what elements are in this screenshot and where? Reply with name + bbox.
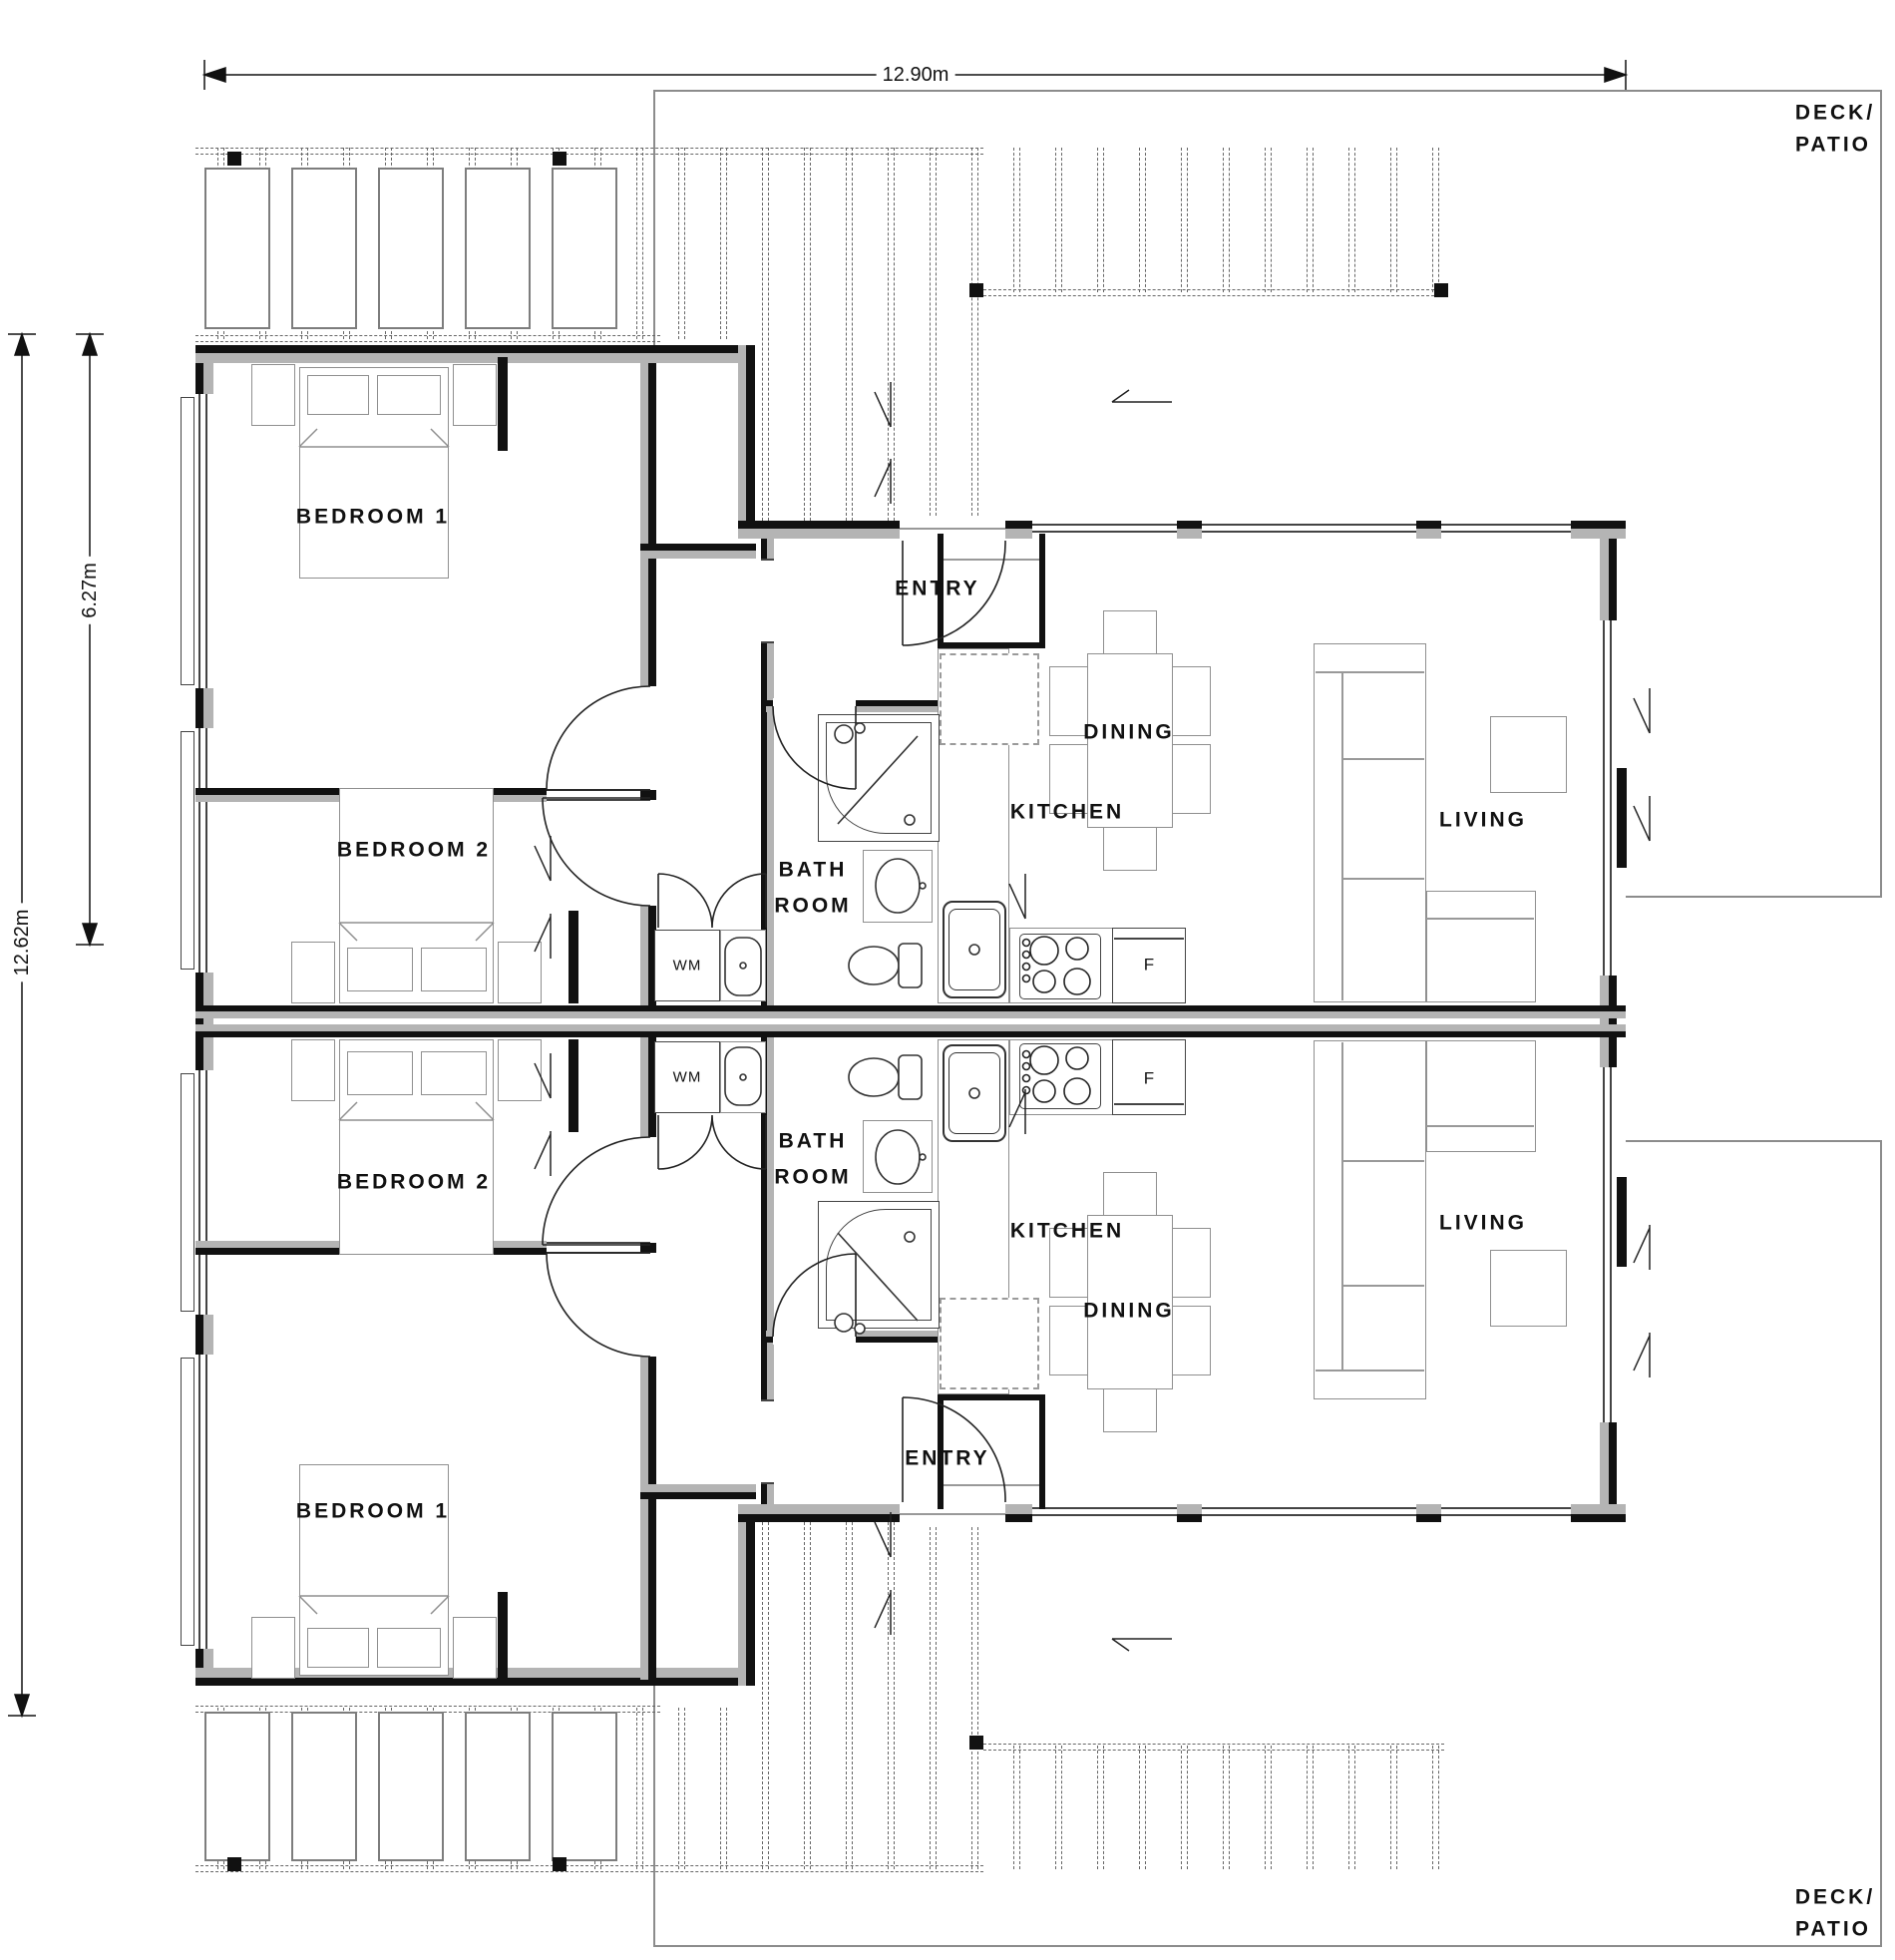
entry-threshold [900,1513,1005,1515]
window-glazing [1202,1507,1416,1509]
window-frame [181,397,194,685]
pergola-rafter [1139,1746,1146,1869]
wall-hall [648,1357,656,1680]
room-label-entry: ENTRY [895,579,979,599]
pergola-louvre [465,1712,531,1861]
kitchen-sink-bowl [948,1052,1000,1134]
window-bottom [1202,1500,1416,1526]
pergola-rafter [1013,1746,1020,1869]
room-label-kitchen: KITCHEN [1010,802,1124,823]
room-label-dining: DINING [1083,722,1175,743]
pillow [377,1628,441,1668]
pergola-post [227,1857,241,1871]
pergola-rafter [762,1522,769,1869]
dining-chair [1171,1228,1211,1298]
window-top [1441,517,1571,543]
dimension-width-label: 12.90m [877,65,955,85]
closet-wall [938,1394,1045,1400]
wall-stub-core [640,551,756,559]
pergola-rafter [1181,1746,1188,1869]
window-glazing [1032,1507,1177,1509]
room-label-dining: DINING [1083,1301,1175,1322]
pergola-rafter [1307,148,1314,292]
sofa-line [1316,671,1424,673]
window-glazing [205,728,207,973]
wall-stub [640,544,756,551]
window-frame [181,731,194,970]
pergola-rafter [678,148,685,339]
window-glazing [198,728,200,973]
wardrobe-door [498,357,508,451]
window-glazing [198,1070,200,1315]
room-label-bathroom: BATH [779,860,848,881]
pergola-rafter [888,1522,895,1869]
pergola-rafter [1348,148,1355,292]
coffee-table [1490,716,1567,793]
pergola-rafter [804,1522,811,1869]
sofa [1314,643,1426,1002]
pergola-rafter [720,148,727,339]
window-glazing [1441,524,1571,526]
pergola-rafter [1432,1746,1439,1869]
window-left [191,728,215,973]
pergola-rafter [636,1708,643,1869]
pergola-louvre [204,168,270,329]
appliance-label-wm: WM [673,1070,702,1085]
room-label-bedroom1: BEDROOM 1 [296,507,450,528]
party-wall-core [195,1024,1626,1031]
pergola-louvre [378,1712,444,1861]
vanity [863,850,933,923]
window-glazing [205,394,207,688]
pergola-rafter [1139,148,1146,292]
nightstand [453,364,497,426]
wall-step-core [738,345,746,539]
pergola-rafter [1265,1746,1272,1869]
nightstand [498,942,542,1003]
nightstand [251,1617,295,1679]
pergola-rafter [1223,148,1230,292]
wall-step-core [738,1504,746,1686]
window-glazing [198,394,200,688]
pergola-rafter [930,148,937,521]
pergola-rafter [1348,1746,1355,1869]
pergola-edge [983,1744,1444,1751]
pergola-post [1434,283,1448,297]
cased-opening [761,559,774,561]
appliance-label-fridge: F [1144,957,1154,974]
sofa-line [1343,878,1424,880]
laundry-tub [720,1041,766,1113]
room-label-kitchen: KITCHEN [1010,1221,1124,1242]
deck-patio-label-top: DECK/ [1795,103,1875,124]
sofa-line [1426,918,1534,920]
window-glazing [1032,1514,1177,1516]
wall-vestibule-core [767,1037,774,1399]
nightstand [291,1039,335,1101]
sofa-line [1343,758,1424,760]
pillow [307,375,369,415]
wall-hall-core [640,1357,648,1680]
pillow [347,1051,413,1095]
window-glazing [1202,531,1416,533]
cooktop [1019,1043,1101,1109]
cooktop [1019,934,1101,999]
pergola-post [969,1736,983,1750]
pillow [421,948,487,991]
wall-stub [640,1492,756,1499]
entry-threshold [900,528,1005,530]
pergola-louvre [291,1712,357,1861]
sofa-line [1343,1160,1424,1162]
pergola-rafter [888,148,895,521]
room-label-bedroom1: BEDROOM 1 [296,1501,450,1522]
wardrobe-door [498,1592,508,1686]
pillow [347,948,413,991]
closet-wall [1039,534,1045,648]
vanity [863,1120,933,1193]
kitchen-dishwasher [940,653,1039,745]
room-label-bedroom2: BEDROOM 2 [337,840,491,861]
room-label-bathroom: ROOM [774,896,851,917]
wall-bedrooms-bottom [195,1678,755,1686]
room-label-living: LIVING [1439,1213,1527,1234]
window-left [191,394,215,688]
window-frame [181,1073,194,1312]
pergola-post [553,152,567,166]
nightstand [498,1039,542,1101]
pergola-edge [195,1865,983,1872]
closet-shelf [944,1484,1039,1486]
pergola-louvre [204,1712,270,1861]
wall-stub-core [640,1484,756,1492]
slider-panel [1617,768,1627,868]
pergola-rafter [971,1522,978,1869]
dimension-depth-label: 12.62m [12,904,32,982]
wall-step [746,1504,755,1686]
closet-shelf [944,559,1039,561]
kitchen-dishwasher [940,1298,1039,1389]
entry-opening [900,517,1005,543]
window-glazing [205,1355,207,1649]
deck-patio-label-bottom: DECK/ [1795,1887,1875,1908]
cased-opening [547,799,650,801]
window-glazing [1202,1514,1416,1516]
pergola-rafter [1055,1746,1062,1869]
window-frame [181,1358,194,1646]
pillow [421,1051,487,1095]
bathroom-door-opening [773,698,856,714]
window-glazing [1603,1067,1605,1422]
pergola-rafter [1223,1746,1230,1869]
cased-opening [761,641,774,643]
door-jamb [640,1243,656,1253]
dining-chair [1171,666,1211,736]
sofa-line [1426,1125,1534,1127]
pergola-rafter [971,148,978,521]
cased-opening [547,789,650,791]
appliance-label-fridge: F [1144,1070,1154,1087]
window-top [1202,517,1416,543]
dining-chair [1171,1306,1211,1375]
pergola-rafter [636,148,643,339]
appliance-label-wm: WM [673,959,702,974]
kitchen-sink-bowl [948,909,1000,990]
pergola-rafter [930,1522,937,1869]
dining-chair [1171,744,1211,814]
pergola-edge [195,148,983,155]
pergola-louvre [552,1712,617,1861]
pergola-rafter [1390,1746,1397,1869]
deck-patio-label-bottom: PATIO [1795,1919,1871,1940]
pergola-rafter [1307,1746,1314,1869]
sofa-chaise [1426,1040,1536,1152]
dining-chair [1103,610,1157,656]
pergola-rafter [1097,148,1104,292]
room-label-bathroom: BATH [779,1131,848,1152]
room-label-living: LIVING [1439,810,1527,831]
window-glazing [1441,1514,1571,1516]
window-glazing [1441,1507,1571,1509]
dining-chair [1103,1386,1157,1432]
pillow [307,1628,369,1668]
nightstand [291,942,335,1003]
dining-chair [1103,1172,1157,1218]
deck-patio-label-top: PATIO [1795,135,1871,156]
wall-hall-core [640,363,648,686]
window-glazing [1202,524,1416,526]
pergola-rafter [846,148,853,521]
wall-vestibule-core [767,539,774,559]
nightstand [251,364,295,426]
pergola-rafter [1432,148,1439,292]
sofa-chaise [1426,891,1536,1002]
nightstand [453,1617,497,1679]
dining-chair [1103,825,1157,871]
pergola-post [969,283,983,297]
pergola-rafter [1013,148,1020,292]
pergola-rafter [762,148,769,521]
window-left [191,1355,215,1649]
sofa-line [1341,1042,1343,1370]
wall-vestibule-core [767,1484,774,1504]
pillow [377,375,441,415]
pergola-louvre [465,168,531,329]
floor-plan: 12.90m 12.62m 6.27m DECK/ PATIO DECK/ PA… [0,0,1895,1960]
party-wall-core [195,1011,1626,1018]
fridge-line [1114,1103,1184,1105]
wardrobe-door [568,1039,578,1132]
wall-hall-core [640,1037,648,1137]
window-glazing [1610,1067,1612,1422]
bathroom-door-opening [773,1329,856,1345]
window-glazing [205,1070,207,1315]
window-glazing [1032,524,1177,526]
pergola-rafter [678,1708,685,1869]
slider-panel [1617,1177,1627,1267]
cased-opening [547,1252,650,1254]
cased-opening [761,1482,774,1484]
cased-opening [761,1399,774,1401]
pergola-rafter [846,1522,853,1869]
window-bottom [1441,1500,1571,1526]
room-label-entry: ENTRY [905,1448,989,1469]
pergola-rafter [1097,1746,1104,1869]
party-wall [195,1031,1626,1037]
pergola-post [553,1857,567,1871]
room-label-bathroom: ROOM [774,1167,851,1188]
wall-bedrooms-top-core [195,353,755,363]
pergola-rafter [720,1708,727,1869]
fridge-line [1114,938,1184,940]
wall-step [746,345,755,539]
pergola-rafter [1265,148,1272,292]
window-glazing [1610,620,1612,976]
door-jamb [640,790,656,800]
pergola-louvre [291,168,357,329]
pergola-post [227,152,241,166]
window-left [191,1070,215,1315]
pergola-rafter [1390,148,1397,292]
pergola-edge [983,289,1444,296]
laundry-tub [720,930,766,1001]
window-glazing [1603,620,1605,976]
pergola-rafter [1181,148,1188,292]
room-label-bedroom2: BEDROOM 2 [337,1172,491,1193]
window-top [1032,517,1177,543]
pergola-louvre [552,168,617,329]
sofa-line [1343,1285,1424,1287]
window-glazing [1441,531,1571,533]
pergola-louvre [378,168,444,329]
wall-bedrooms-top [195,345,755,353]
coffee-table [1490,1250,1567,1327]
window-bottom [1032,1500,1177,1526]
sofa-line [1341,673,1343,1000]
sofa [1314,1040,1426,1399]
closet-wall [1039,1394,1045,1509]
pergola-rafter [1055,148,1062,292]
cased-opening [547,1242,650,1244]
pergola-rafter [804,148,811,521]
wall-hall [648,363,656,686]
window-glazing [198,1355,200,1649]
dimension-unit-depth-label: 6.27m [80,557,100,624]
wardrobe-door [568,911,578,1003]
wall-hall-core [640,906,648,1005]
window-glazing [1032,531,1177,533]
sofa-line [1316,1370,1424,1372]
